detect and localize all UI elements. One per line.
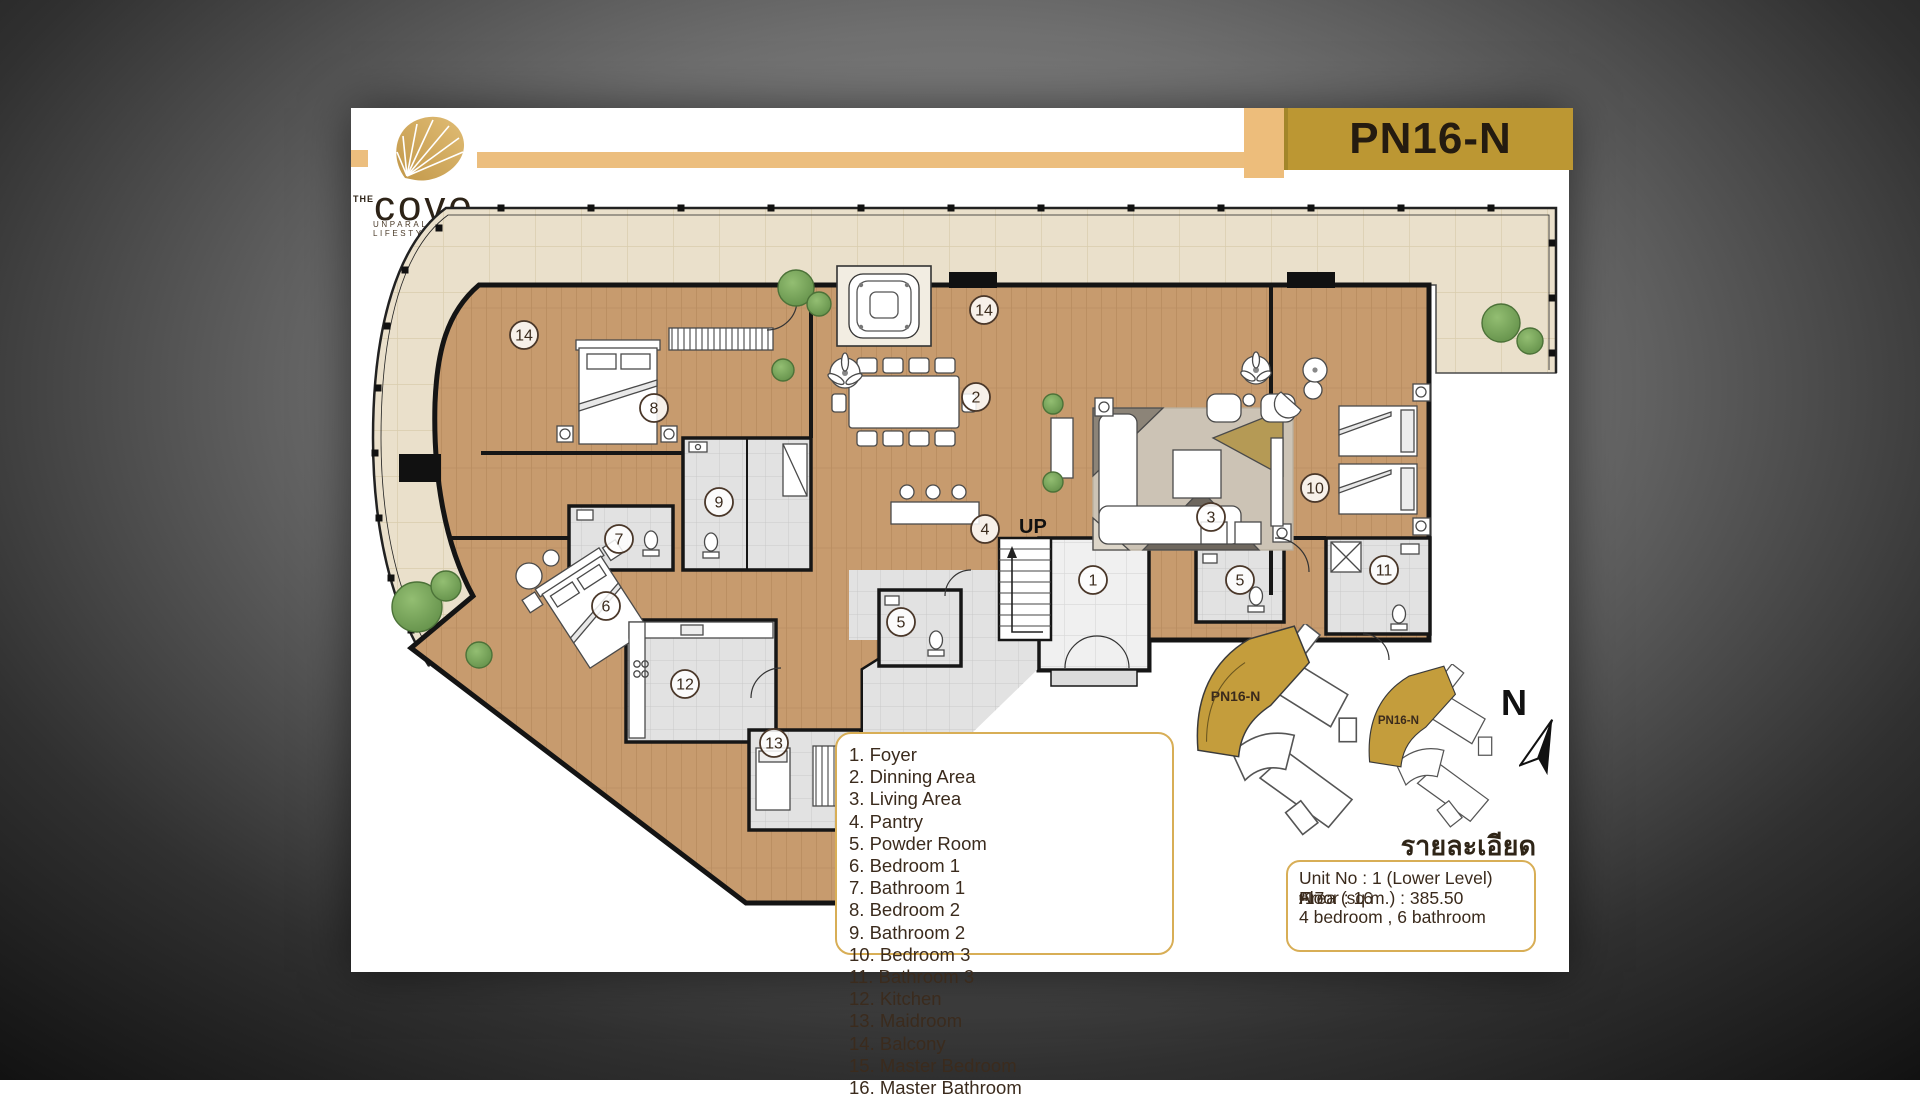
railing-tick — [1308, 205, 1315, 212]
railing-tick — [375, 385, 382, 392]
railing-tick — [436, 225, 443, 232]
legend-item: 7. Bathroom 1 — [849, 877, 1011, 899]
railing-tick — [1128, 205, 1135, 212]
legend-item: 16. Master Bathroom — [849, 1077, 1022, 1099]
railing-tick — [1488, 205, 1495, 212]
keyplan-label: PN16-N — [1378, 715, 1419, 727]
room-marker-number: 4 — [981, 522, 990, 539]
legend-item: 11. Bathroom 3 — [849, 966, 1022, 988]
railing-tick — [1038, 205, 1045, 212]
room-marker-number: 8 — [650, 401, 659, 418]
legend-item: 15. Master Bedroom — [849, 1055, 1022, 1077]
legend-item: 4. Pantry — [849, 811, 1011, 833]
railing-tick — [1398, 205, 1405, 212]
stairs — [999, 538, 1051, 640]
railing-tick — [1218, 205, 1225, 212]
railing-tick — [388, 575, 395, 582]
keyplan-label: PN16-N — [1211, 688, 1260, 704]
keyplan-small: PN16-N — [1363, 664, 1495, 830]
railing-tick — [1549, 350, 1556, 357]
room-marker-number: 7 — [615, 532, 624, 549]
room-marker-number: 11 — [1376, 563, 1393, 580]
legend-item: 6. Bedroom 1 — [849, 855, 1011, 877]
legend-item: 13. Maidroom — [849, 1010, 1022, 1032]
north-arrow-icon — [1519, 716, 1567, 778]
room-marker-number: 1 — [1089, 573, 1098, 590]
legend-column-1: 1. Foyer2. Dinning Area3. Living Area4. … — [849, 744, 1011, 966]
legend-item: 5. Powder Room — [849, 833, 1011, 855]
railing-tick — [402, 267, 409, 274]
room-marker-number: 5 — [897, 615, 906, 632]
railing-tick — [384, 323, 391, 330]
room-marker-number: 9 — [715, 495, 724, 512]
railing-tick — [948, 205, 955, 212]
brochure-page: PN16-N THEcove UNPARALLELED LIFESTYLE — [351, 108, 1569, 972]
detail-rooms: 4 bedroom , 6 bathroom — [1299, 908, 1523, 928]
legend-item: 10. Bedroom 3 — [849, 944, 1011, 966]
railing-tick — [588, 205, 595, 212]
legend-item: 14. Balcony — [849, 1033, 1022, 1055]
legend-item: 2. Dinning Area — [849, 766, 1011, 788]
legend-column-2: 11. Bathroom 312. Kitchen13. Maidroom14.… — [849, 966, 1022, 1099]
room-marker-number: 6 — [602, 599, 611, 616]
room-marker-number: 13 — [765, 736, 783, 753]
room-marker-number: 5 — [1236, 573, 1245, 590]
legend-item: 12. Kitchen — [849, 988, 1022, 1010]
room-marker-number: 3 — [1207, 510, 1216, 527]
railing-tick — [1549, 295, 1556, 302]
railing-tick — [376, 515, 383, 522]
legend-item: 8. Bedroom 2 — [849, 899, 1011, 921]
railing-tick — [858, 205, 865, 212]
legend-item: 3. Living Area — [849, 788, 1011, 810]
details-box: Unit No : 1 (Lower Level) Floor : 16th-1… — [1286, 860, 1536, 952]
keyplan-large: PN16-N — [1189, 624, 1361, 838]
railing-tick — [498, 205, 505, 212]
up-label: UP — [1019, 516, 1047, 538]
room-marker-number: 12 — [676, 677, 694, 694]
room-marker-number: 14 — [515, 328, 533, 345]
compass: N — [1493, 682, 1573, 782]
legend-item: 1. Foyer — [849, 744, 1011, 766]
legend-box: 1. Foyer2. Dinning Area3. Living Area4. … — [835, 732, 1174, 955]
railing-tick — [1549, 240, 1556, 247]
detail-unit: Unit No : 1 (Lower Level) — [1299, 869, 1523, 889]
room-marker-number: 14 — [975, 303, 993, 320]
legend-item: 9. Bathroom 2 — [849, 922, 1011, 944]
railing-tick — [768, 205, 775, 212]
room-marker-number: 2 — [972, 390, 981, 407]
room-marker-number: 10 — [1306, 481, 1324, 498]
railing-tick — [678, 205, 685, 212]
railing-tick — [372, 450, 379, 457]
